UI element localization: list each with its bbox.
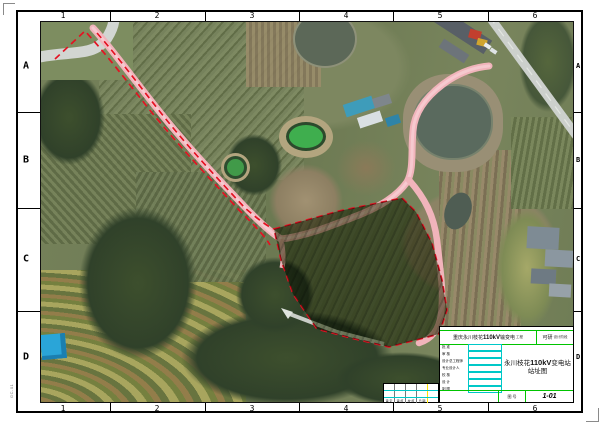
approval-value-cell [468,379,502,386]
title-block-header: 重庆永川枝花110kV输变电工程 可研设计阶段 [440,330,573,345]
signature-cell [417,384,428,390]
grid-col-label: 4 [344,404,349,413]
approval-value-cell [468,372,502,379]
signature-cell [417,391,428,397]
grid-col-label: 1 [61,404,66,413]
stage-note: 设计阶段 [554,335,568,340]
approval-row: 专业设计人 [442,365,502,372]
grid-row-label: C [576,255,580,263]
trim-mark-bottom-right [586,408,599,422]
signature-cell-label: 日 期 [417,398,428,403]
ruler-tick [488,10,489,21]
ruler-tick [488,403,489,413]
approval-value-cell [468,351,502,358]
approval-rows: 批 准 审 核 设计总工程师 专业设计人 校 核 设 计 制 图 [442,344,502,393]
ruler-tick [205,10,206,21]
approval-label: 专业设计人 [442,366,468,371]
grid-row-label: D [23,352,29,363]
drawing-sheet: 1 2 3 4 5 6 1 2 3 4 5 6 A B C D A B C D … [0,0,600,424]
grid-col-label: 1 [61,11,66,20]
ruler-tick [393,10,394,21]
title-block: 重庆永川枝花110kV输变电工程 可研设计阶段 批 准 审 核 设计总工程师 专… [439,326,574,403]
grid-col-label: 4 [344,11,349,20]
signature-row: 审 定 审 核 校 核 日 期 [384,398,438,403]
signature-cell-label: 校 核 [406,398,417,403]
corridor-boundary-left [55,31,270,245]
approval-label: 校 核 [442,373,468,378]
signature-cell [395,391,406,397]
grid-row-label: B [23,155,29,166]
grid-col-label: 3 [250,11,255,20]
path-structure [281,308,293,319]
approval-value-cell [468,358,502,365]
ruler-tick [574,112,583,113]
grid-col-label: 2 [155,404,160,413]
trim-mark-top-left [3,3,15,15]
signature-cell-label: 审 定 [384,398,395,403]
bottom-row-spacer [440,391,499,402]
ruler-tick [299,403,300,413]
signature-cell [384,391,395,397]
ruler-tick [16,311,40,312]
signature-cell [428,384,438,390]
approval-label: 设 计 [442,380,468,385]
approval-value-cell [468,365,502,372]
signature-cell [384,384,395,390]
approval-row: 批 准 [442,344,502,351]
project-name-suffix: 输变电 [500,334,515,341]
ruler-tick [16,112,40,113]
project-name: 重庆永川枝花110kV输变电工程 [440,331,537,344]
approval-row: 审 核 [442,351,502,358]
drawing-title: 永川枝花110kV变电站站址图 [504,344,571,390]
ruler-tick [299,10,300,21]
plot-stamp: GC-01 [9,352,14,398]
approval-row: 设计总工程师 [442,358,502,365]
ruler-tick [16,208,40,209]
title-block-bottom-row: 图 号 1-01 [440,390,573,402]
ruler-tick [574,311,583,312]
drawing-no-label: 图 号 [499,391,526,402]
grid-row-label: A [576,62,580,70]
grid-col-label: 5 [438,11,443,20]
drawing-title-voltage: 110kV [530,358,551,367]
signature-cell [406,391,417,397]
signature-cell-label: 审 核 [395,398,406,403]
signature-row [384,391,438,398]
drawing-no-value: 1-01 [526,393,573,400]
signature-strip: 审 定 审 核 校 核 日 期 [383,383,439,403]
grid-col-label: 2 [155,11,160,20]
highway [489,22,574,142]
grid-col-label: 3 [250,404,255,413]
approval-value-cell [468,344,502,351]
project-voltage: 110kV [483,335,500,341]
approval-label: 批 准 [442,345,468,350]
grid-col-label: 5 [438,404,443,413]
ruler-tick [205,403,206,413]
signature-cell [406,384,417,390]
approval-label: 审 核 [442,352,468,357]
grid-col-label: 6 [533,404,538,413]
ruler-tick [574,208,583,209]
project-name-prefix: 重庆永川枝花 [453,334,483,341]
approval-label: 设计总工程师 [442,359,468,364]
design-stage: 可研设计阶段 [537,331,573,344]
stage-label: 可研 [542,334,552,341]
ruler-tick [110,403,111,413]
signature-cell [395,384,406,390]
signature-row [384,384,438,391]
approval-row: 校 核 [442,372,502,379]
grid-row-label: C [23,254,29,265]
ruler-tick [110,10,111,21]
signature-cell [428,398,438,403]
grid-row-label: D [576,353,580,361]
grid-row-label: B [576,156,580,164]
grid-row-label: A [23,61,29,72]
project-name-small: 工程 [516,335,523,340]
drawing-title-prefix: 永川枝花 [504,360,530,367]
ruler-tick [393,403,394,413]
approval-row: 设 计 [442,379,502,386]
grid-col-label: 6 [533,11,538,20]
signature-cell [428,391,438,397]
